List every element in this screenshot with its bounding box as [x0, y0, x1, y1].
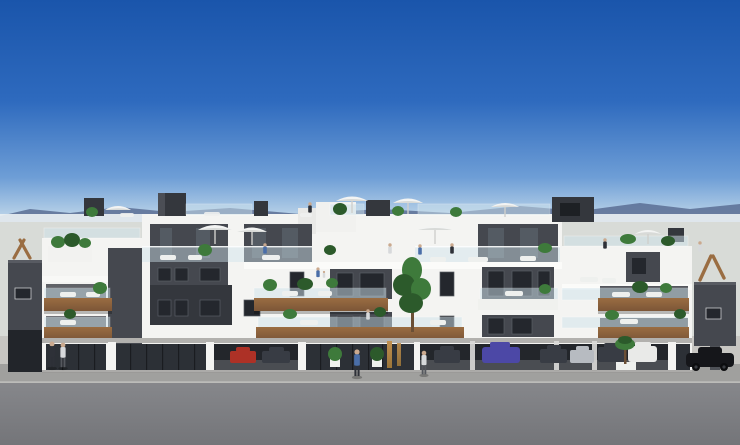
person-figure	[323, 271, 325, 278]
storefront-glass	[114, 344, 206, 370]
roof-plant	[450, 207, 462, 217]
curb-line	[0, 381, 740, 383]
person-figure	[263, 243, 267, 253]
person-figure	[603, 238, 607, 248]
render-scene: New-build apartment complex — exterior 3…	[0, 0, 740, 445]
person-figure	[388, 243, 392, 253]
architectural-render: Architectural rendering of a modern thre…	[0, 0, 740, 445]
storefront-glass	[46, 344, 106, 370]
person-figure	[308, 202, 312, 212]
roof-planter-box	[48, 246, 92, 262]
person-figure	[450, 243, 454, 253]
person-figure	[316, 267, 319, 277]
building-base-shadow	[42, 370, 692, 373]
roof-plant	[333, 203, 347, 215]
person-figure	[366, 309, 370, 319]
person-figure	[418, 244, 422, 254]
roof-plant	[392, 206, 404, 216]
person-figure	[698, 241, 702, 251]
asphalt-road	[0, 383, 740, 445]
left-wing-dark-column	[108, 248, 142, 344]
roof-plant	[86, 207, 98, 217]
